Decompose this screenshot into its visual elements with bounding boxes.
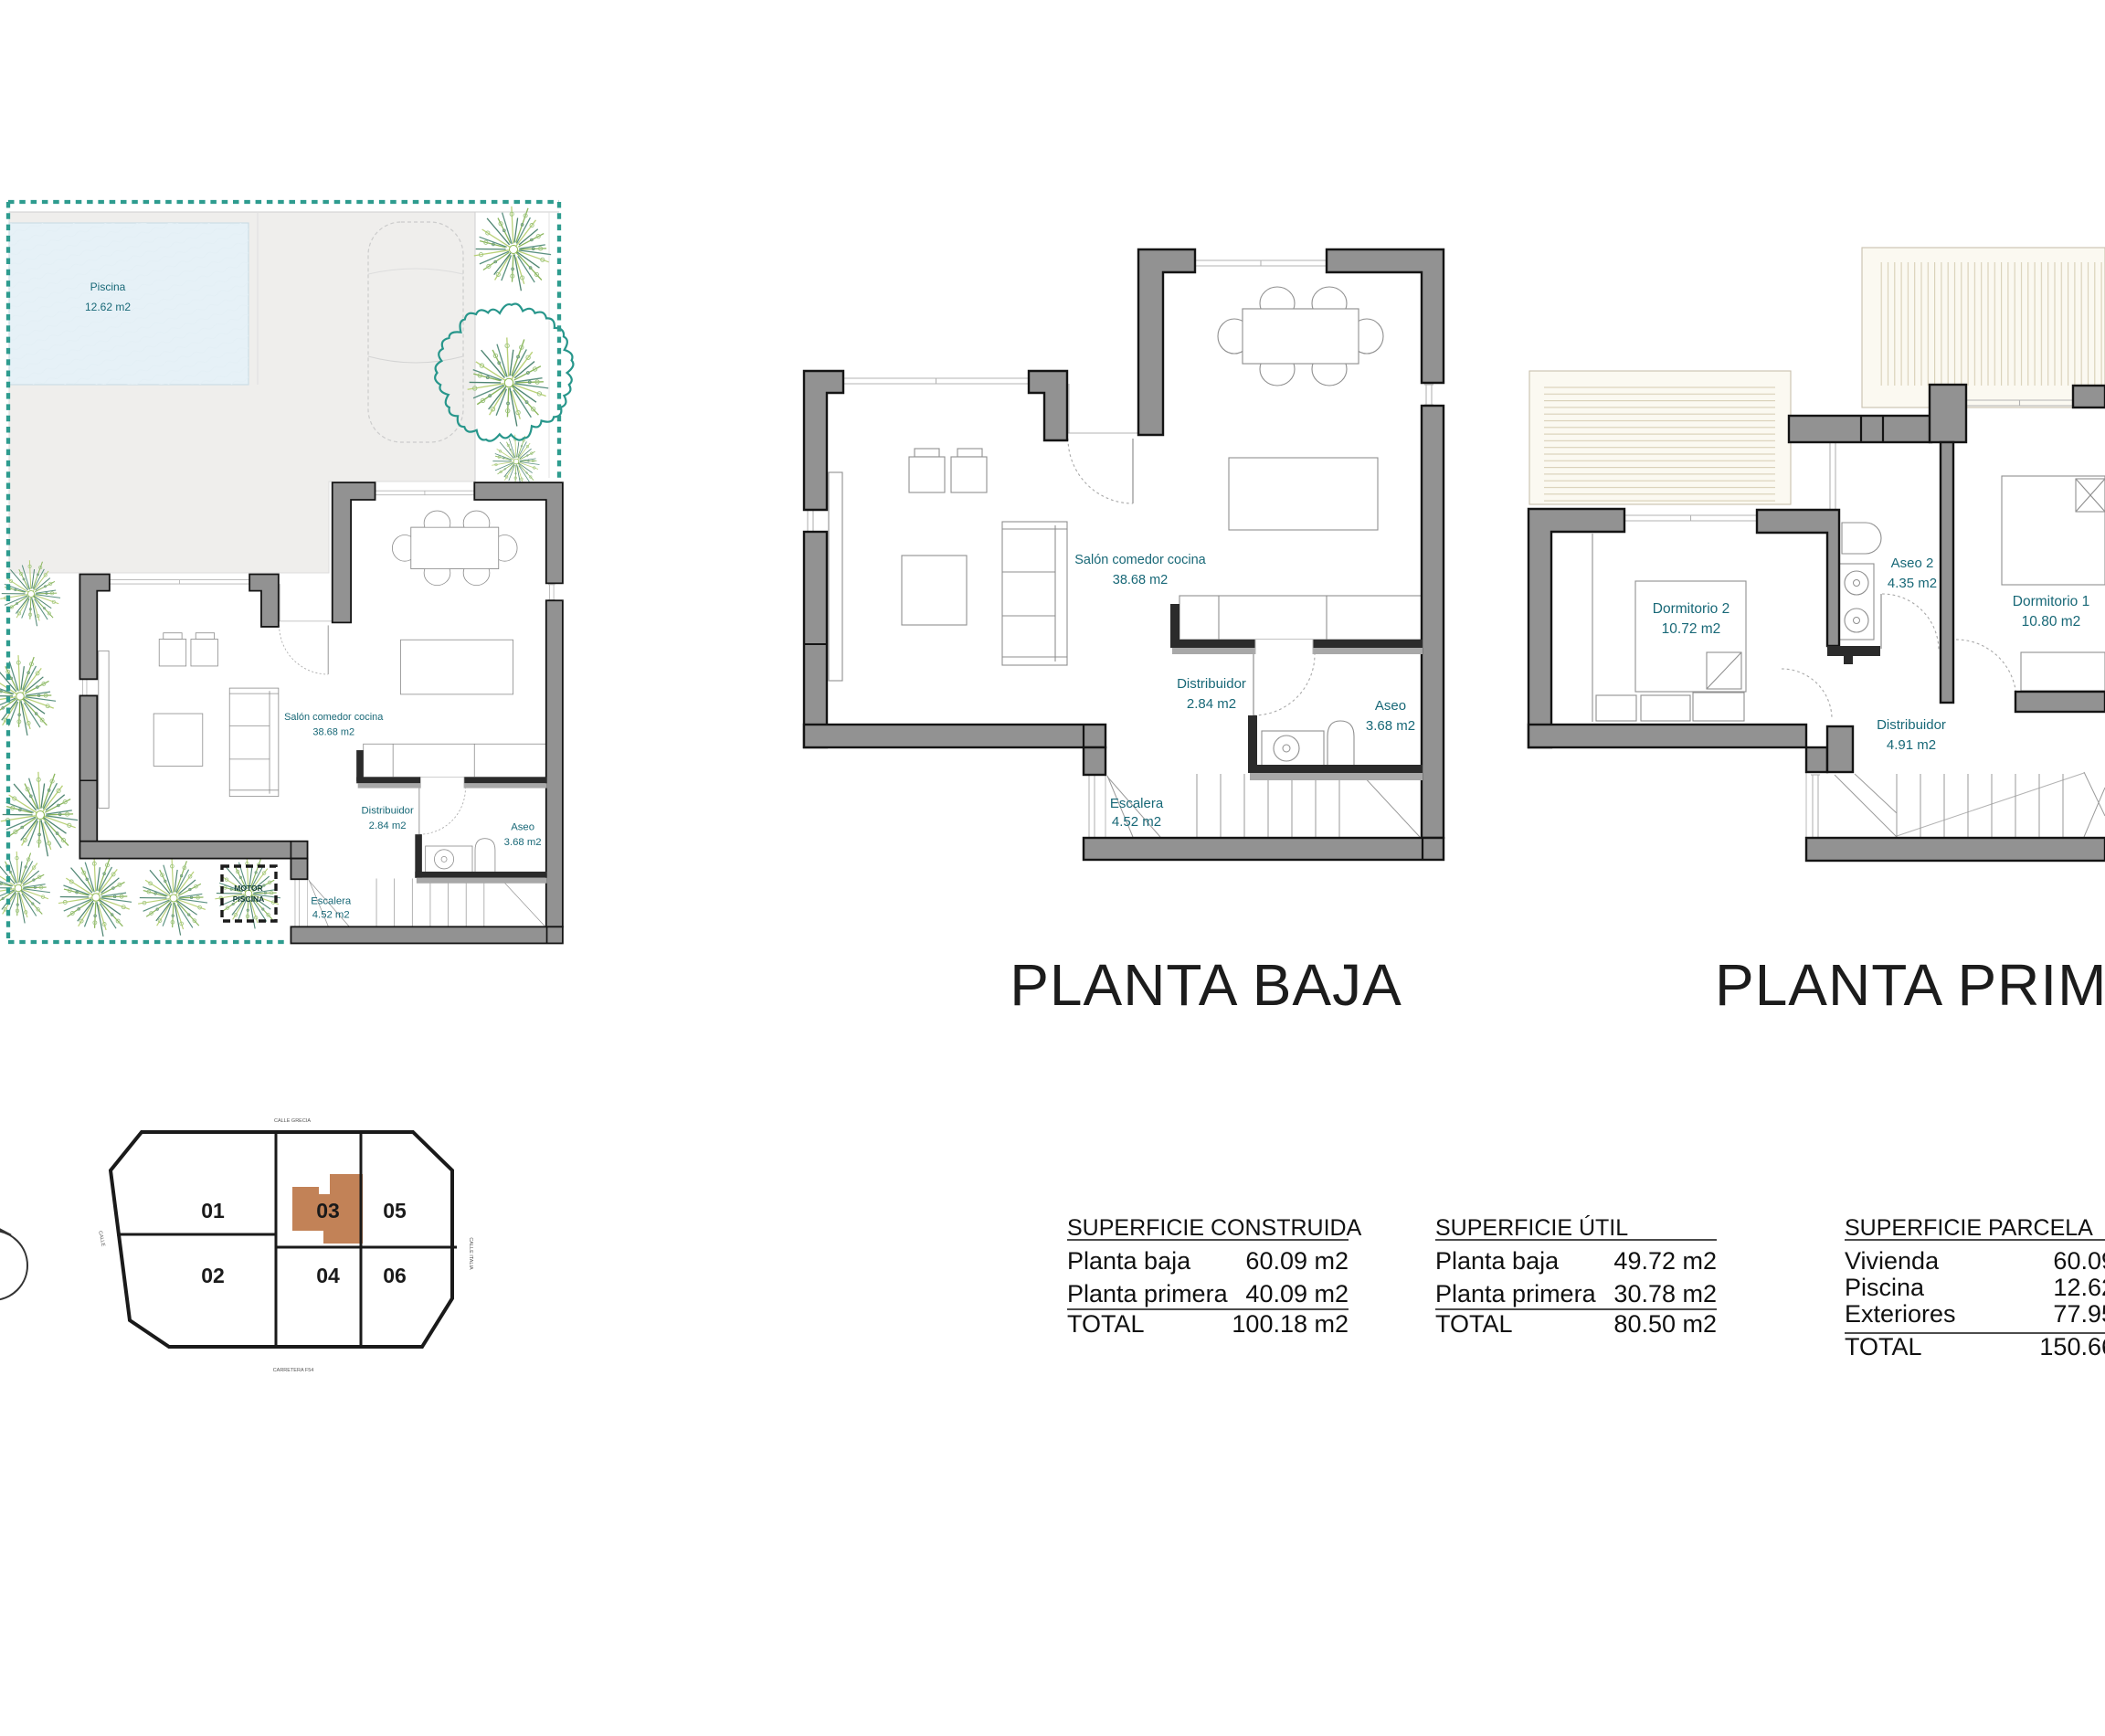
svg-text:SUPERFICIE PARCELA: SUPERFICIE PARCELA	[1845, 1215, 2093, 1241]
svg-text:PISCINA: PISCINA	[233, 894, 264, 904]
svg-text:TOTAL: TOTAL	[1067, 1310, 1145, 1338]
svg-text:Planta primera: Planta primera	[1067, 1280, 1229, 1307]
svg-text:TOTAL: TOTAL	[1845, 1333, 1922, 1360]
svg-text:04: 04	[316, 1264, 340, 1287]
svg-text:05: 05	[383, 1199, 407, 1223]
svg-text:06: 06	[383, 1264, 407, 1287]
svg-text:Planta baja: Planta baja	[1067, 1247, 1191, 1275]
svg-text:12.62 m2: 12.62 m2	[85, 301, 131, 313]
svg-text:30.78 m2: 30.78 m2	[1613, 1280, 1717, 1307]
svg-text:Aseo 2: Aseo 2	[1891, 556, 1934, 571]
svg-text:Distribuidor: Distribuidor	[1877, 717, 1946, 733]
svg-text:02: 02	[201, 1264, 225, 1287]
svg-text:Vivienda: Vivienda	[1845, 1247, 1940, 1275]
svg-text:10.72 m2: 10.72 m2	[1662, 621, 1721, 637]
svg-text:Planta primera: Planta primera	[1435, 1280, 1597, 1307]
svg-text:SUPERFICIE CONSTRUIDA: SUPERFICIE CONSTRUIDA	[1067, 1215, 1362, 1241]
svg-text:CALLE GRECIA: CALLE GRECIA	[274, 1118, 311, 1124]
svg-text:49.72 m2: 49.72 m2	[1613, 1247, 1717, 1275]
svg-text:Piscina: Piscina	[90, 281, 126, 293]
svg-text:TOTAL: TOTAL	[1435, 1310, 1513, 1338]
svg-text:MOTOR: MOTOR	[234, 884, 262, 893]
svg-text:CALLE: CALLE	[97, 1231, 106, 1248]
svg-text:77.95 m2: 77.95 m2	[2053, 1300, 2105, 1328]
svg-text:80.50 m2: 80.50 m2	[1613, 1310, 1717, 1338]
svg-text:Planta baja: Planta baja	[1435, 1247, 1560, 1275]
svg-text:60.09 m2: 60.09 m2	[1245, 1247, 1349, 1275]
svg-text:40.09 m2: 40.09 m2	[1245, 1280, 1349, 1307]
svg-text:Piscina: Piscina	[1845, 1274, 1925, 1301]
svg-text:CARRETERA F54: CARRETERA F54	[273, 1368, 314, 1373]
svg-text:150.66 m2: 150.66 m2	[2039, 1333, 2105, 1360]
svg-text:4.91 m2: 4.91 m2	[1887, 737, 1936, 753]
svg-text:Dormitorio 1: Dormitorio 1	[2013, 594, 2089, 609]
svg-text:SUPERFICIE ÚTIL: SUPERFICIE ÚTIL	[1435, 1214, 1628, 1241]
svg-text:PLANTA BAJA: PLANTA BAJA	[1010, 952, 1402, 1018]
svg-text:01: 01	[201, 1199, 225, 1223]
svg-text:Exteriores: Exteriores	[1845, 1300, 1956, 1328]
svg-text:Dormitorio 2: Dormitorio 2	[1653, 601, 1729, 617]
svg-text:10.80 m2: 10.80 m2	[2022, 614, 2081, 630]
svg-text:PLANTA PRIMERA: PLANTA PRIMERA	[1715, 952, 2105, 1018]
svg-text:CALLE ITALIA: CALLE ITALIA	[468, 1237, 473, 1270]
svg-text:60.09 m2: 60.09 m2	[2053, 1247, 2105, 1275]
svg-text:12.62 m2: 12.62 m2	[2053, 1274, 2105, 1301]
svg-text:4.35 m2: 4.35 m2	[1888, 576, 1937, 591]
svg-text:100.18 m2: 100.18 m2	[1232, 1310, 1349, 1338]
svg-text:03: 03	[316, 1199, 340, 1223]
